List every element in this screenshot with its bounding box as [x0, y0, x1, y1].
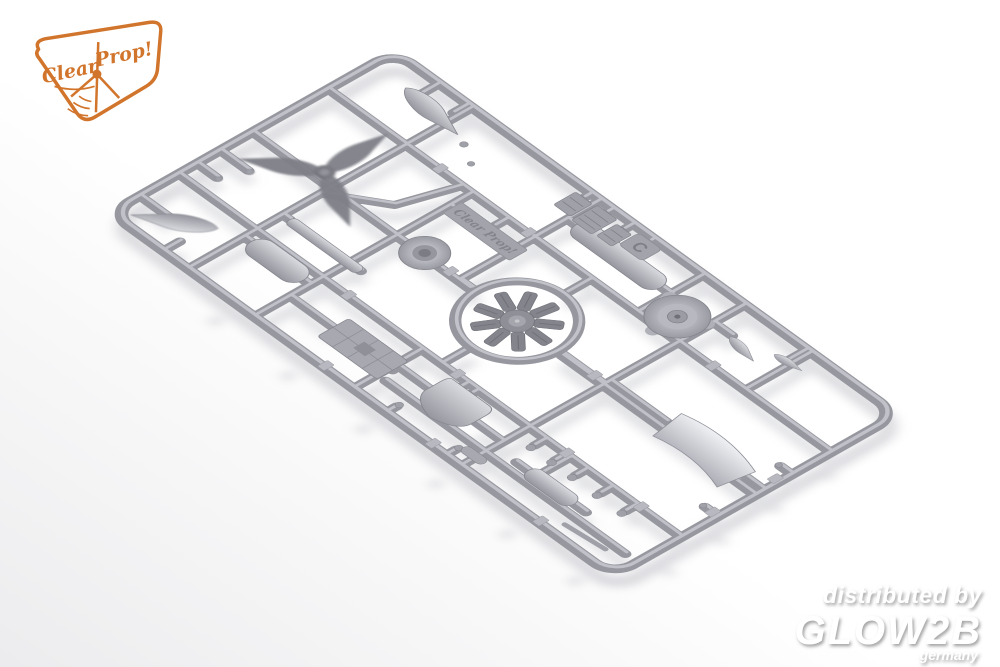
distributor-watermark: distributed by GLOW2B germany [794, 582, 982, 663]
watermark-country: germany [919, 647, 980, 663]
watermark-line1: distributed by [823, 582, 983, 608]
product-photo: Clear Prop! C Clear Prop! distributed by… [0, 0, 1000, 667]
